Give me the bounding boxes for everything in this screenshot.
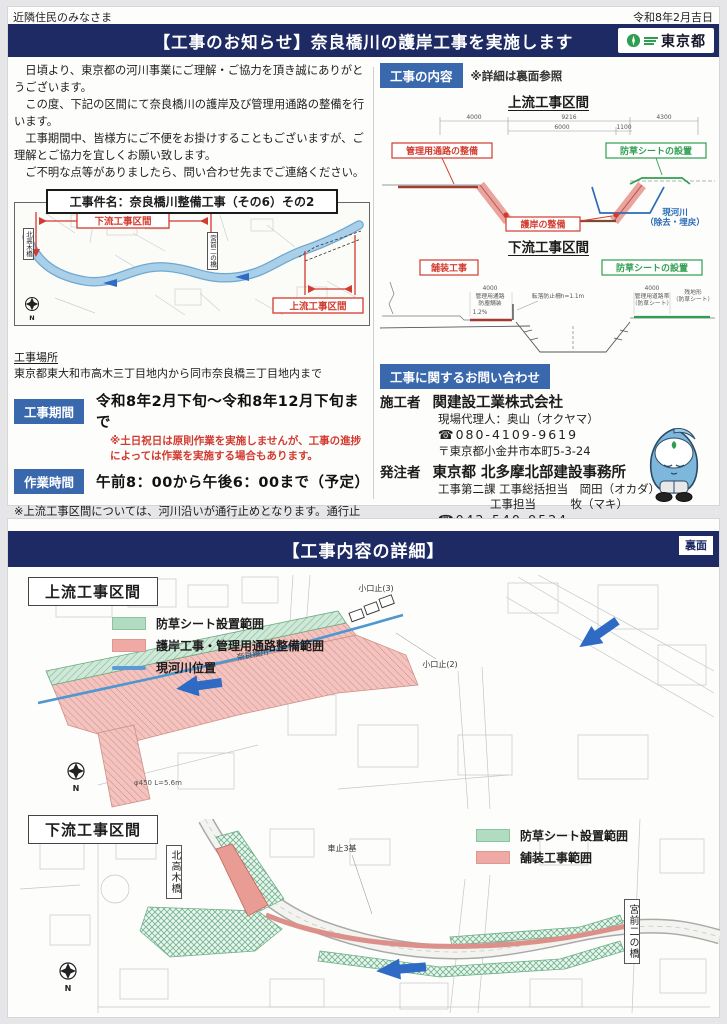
hours-value: 午前8：00から午後6：00まで（予定） [96,471,370,492]
period-row: 工事期間 令和8年2月下旬～令和8年12月下旬まで [14,390,370,432]
period-note-line: によっては作業を実施する場合もあります。 [110,449,370,463]
label-revetment: 護岸の整備 [520,219,565,231]
river-path [27,225,359,282]
map-label-carstop: 車止3基 [327,843,356,853]
small-road: 管理用通路 [476,292,505,300]
small-strip-2: （防草シート） [632,299,673,307]
dim-6000: 6000 [554,124,569,131]
downstream-legend: 防草シート設置範囲 舗装工事範囲 [476,827,628,871]
period-note: ※土日祝日は原則作業を実施しませんが、工事の進捗 によっては作業を実施する場合も… [110,434,370,462]
leader-line [352,855,372,914]
greeting-text: 日頃より、東京都の河川事業にご理解・ご協力を頂き誠にありがとうございます。 この… [14,63,370,182]
greeting-paragraph: この度、下記の区間にて奈良橋川の護岸及び管理用通路の整備を行います。 [14,97,370,131]
dim-4300: 4300 [656,114,671,121]
logo-small-text [644,37,658,45]
bridge-label-miyamae: 宮前二の橋 [624,899,640,964]
legend-label: 現河川位置 [156,659,216,676]
channel-band [205,819,720,952]
downstream-section-label: 下流工事区間 [28,815,158,844]
map-label-koguchidome2: 小口止(2) [422,659,457,669]
compass-label: N [29,314,34,322]
legend-item: 現河川位置 [112,659,324,676]
channel-lines [380,322,630,352]
contact-header: 工事に関するお問い合わせ [380,364,717,389]
mascot-icon [633,425,715,503]
legend-label: 護岸工事・管理用通路整備範囲 [156,637,324,654]
anchor-dot [503,212,508,217]
period-value: 令和8年2月下旬～令和8年12月下旬まで [96,390,370,432]
small-paving: 防塵舗装 [478,299,501,307]
content-badge: 工事の内容 [380,63,463,88]
overview-map: 下流工事区間 上流工事区間 [14,202,370,326]
small-slope: 1.2% [473,310,488,316]
fence-leader [517,301,538,310]
greeting-paragraph: 工事期間中、皆様方にご不便をお掛けすることもございますが、ご理解とご協力を宜しく… [14,131,370,165]
xsec-downstream-diagram: 舗装工事 防草シートの設置 4000 管理用通路 防塵舗装 転落防止柵h=1.1… [380,256,717,360]
label-weed-sheet-2: 防草シートの設置 [616,262,688,274]
content-header: 工事の内容 ※詳細は裏面参照 [380,63,717,88]
legend-swatch-pink [112,639,146,652]
issue-date: 令和8年2月吉日 [633,9,713,25]
legend-item: 防草シート設置範囲 [476,827,628,844]
label-current-river: 現河川 [662,207,688,218]
content-note: ※詳細は裏面参照 [471,68,563,84]
bridge-label-kitatakagi: 北高木橋 [166,845,182,899]
legend-swatch-line [112,666,146,670]
location-value: 東京都東大和市高木三丁目地内から同市奈良橋三丁目地内まで [14,367,322,380]
compass-label: N [73,784,80,793]
project-overview: 工事件名：奈良橋川整備工事（その6）その2 [14,189,370,345]
period-badge: 工事期間 [14,399,84,424]
notice-front-page: 近隣住民のみなさま 令和8年2月吉日 【工事のお知らせ】奈良橋川の護岸工事を実施… [7,6,720,506]
break-mark [389,282,394,314]
legend-swatch-green [112,617,146,630]
label-weed-sheet: 防草シートの設置 [620,145,692,157]
small-strip: 管理用道路帯 [635,292,670,300]
dim-1100: 1100 [616,124,631,131]
banner-title: 【工事のお知らせ】奈良橋川の護岸工事を実施します [154,29,574,53]
label-paving: 舗装工事 [430,262,467,274]
legend-item: 舗装工事範囲 [476,849,628,866]
compass-icon [68,763,84,779]
small-fence: 転落防止柵h=1.1m [532,292,585,300]
hours-row: 作業時間 午前8：00から午後6：00まで（予定） [14,469,370,494]
back-page-label: 裏面 [679,536,713,555]
notice-back-page: 【工事内容の詳細】 裏面 上流工事区間 防草シート設置範囲 護岸工事・管理用通路… [7,518,720,1018]
upstream-section-label: 上流工事区間 [28,577,158,606]
column-divider [373,67,374,499]
location-block: 工事場所 東京都東大和市高木三丁目地内から同市奈良橋三丁目地内まで [14,350,370,382]
greeting-paragraph: 日頃より、東京都の河川事業にご理解・ご協力を頂き誠にありがとうございます。 [14,63,370,97]
bridge-decks [349,595,394,622]
contact-badge: 工事に関するお問い合わせ [380,364,550,389]
xsec-upstream-title: 上流工事区間 [380,91,717,111]
compass-icon [26,297,39,310]
bridge-label-miyamae: 宮前二の橋 [207,232,218,271]
legend-item: 防草シート設置範囲 [112,615,324,632]
overview-map-drawing: 下流工事区間 上流工事区間 [15,203,367,323]
contractor-row: 施工者 関建設工業株式会社 [380,391,717,412]
client-label: 発注者 [380,461,421,481]
small-rem-2: （防草シート） [673,295,714,303]
compass-icon [60,963,76,979]
small-rem: 残地形 [684,288,702,296]
road-leader [442,158,454,184]
anchor-dot [613,212,618,217]
greeting-paragraph: ご不明な点等がありましたら、問い合わせ先までご連絡ください。 [14,165,370,182]
small-labels-left: 4000 管理用通路 防塵舗装 転落防止柵h=1.1m 1.2% [473,286,585,316]
legend-label: 防草シート設置範囲 [156,615,264,632]
sheet-leader [656,158,662,175]
small-labels-right: 4000 管理用道路帯 （防草シート） 残地形 （防草シート） [632,286,714,307]
xsec-upstream-diagram: 4000 9216 4300 6000 1100 管理用通路の整備 [380,111,717,233]
ground-step [460,316,470,320]
dim-4000-right: 4000 [645,286,660,292]
contractor-name: 関建設工業株式会社 [433,391,564,412]
left-column: 日頃より、東京都の河川事業にご理解・ご協力を頂き誠にありがとうございます。 この… [14,63,370,555]
map-label-koguchidome3: 小口止(3) [358,583,393,593]
ginkgo-icon [626,33,641,48]
downstream-span-label: 下流工事区間 [94,215,151,227]
legend-swatch-pink [476,851,510,864]
detail-banner: 【工事内容の詳細】 裏面 [8,531,719,567]
dim-4000-left: 4000 [483,286,498,292]
legend-label: 舗装工事範囲 [520,849,592,866]
label-management-road: 管理用通路の整備 [406,145,478,157]
period-note-line: ※土日祝日は原則作業を実施しませんが、工事の進捗 [110,434,370,448]
audience-note: 近隣住民のみなさま [13,9,112,25]
logo-text: 東京都 [661,31,706,51]
legend-item: 護岸工事・管理用通路整備範囲 [112,637,324,654]
upstream-map: 小口止(3) 小口止(2) 奈良橋川 φ450 L=5.6m N [38,575,714,809]
contractor-label: 施工者 [380,391,421,411]
upstream-span-label: 上流工事区間 [289,300,346,312]
dim-9216: 9216 [561,114,576,121]
bridge-label-kitatakagi: 北高木橋 [23,228,34,260]
legend-swatch-green [476,829,510,842]
legend-label: 防草シート設置範囲 [520,827,628,844]
label-current-river-2: （除去・埋戻） [645,217,705,228]
project-title: 工事件名：奈良橋川整備工事（その6）その2 [46,189,338,214]
map-label-pile: φ450 L=5.6m [134,779,182,787]
upstream-legend: 防草シート設置範囲 護岸工事・管理用通路整備範囲 現河川位置 [112,615,324,681]
notice-banner: 【工事のお知らせ】奈良橋川の護岸工事を実施します 東京都 [8,24,719,57]
dimension-labels: 4000 9216 4300 6000 1100 [466,114,671,131]
compass-label: N [65,984,72,993]
tokyo-logo: 東京都 [618,28,714,53]
detail-banner-title: 【工事内容の詳細】 [283,537,445,562]
xsec-downstream-title: 下流工事区間 [380,236,717,256]
hours-badge: 作業時間 [14,469,84,494]
location-heading: 工事場所 [14,351,58,364]
dim-4000: 4000 [466,114,481,121]
client-name: 東京都 北多摩北部建設事務所 [433,461,627,482]
